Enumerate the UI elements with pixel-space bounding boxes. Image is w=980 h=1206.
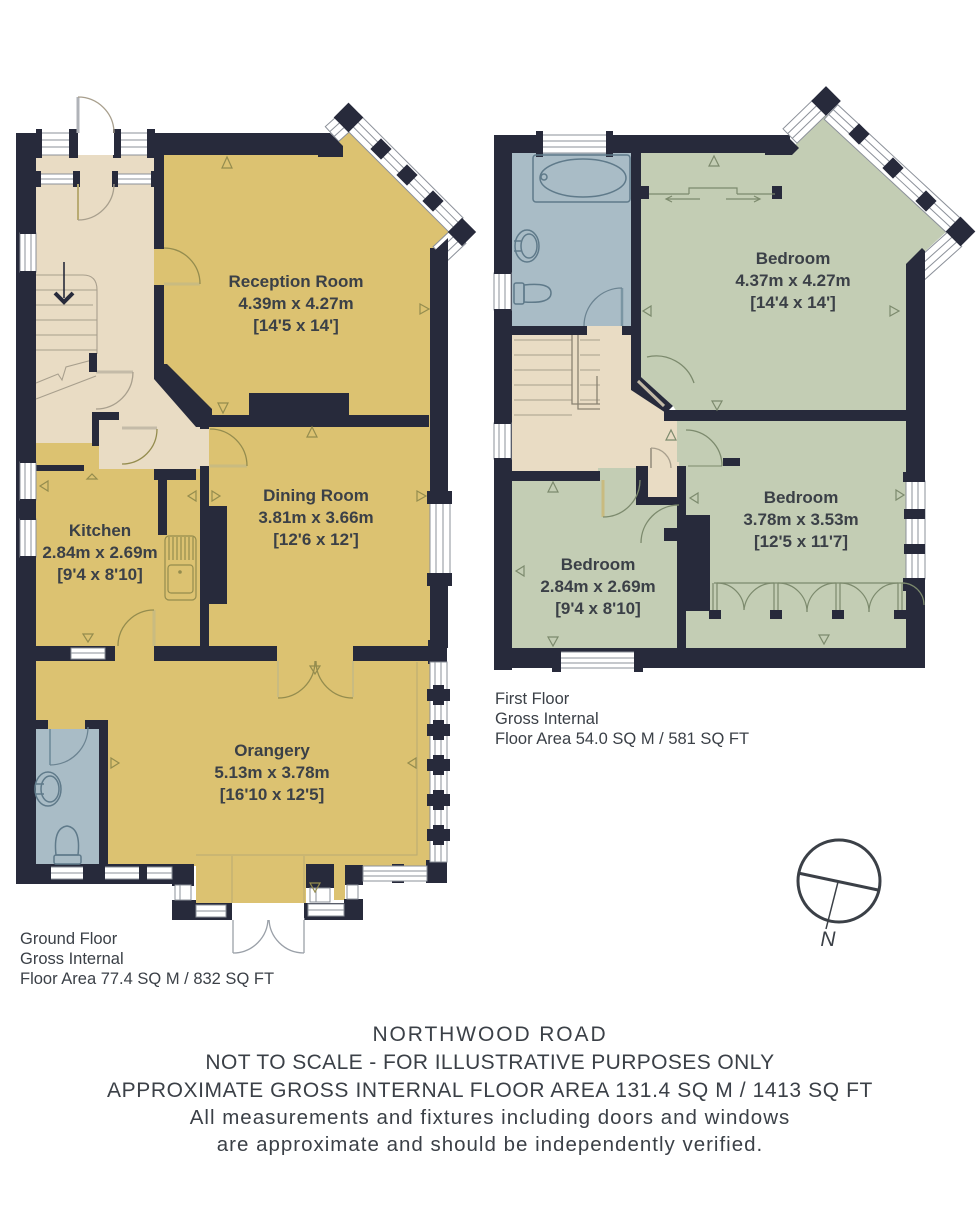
svg-text:are approximate and should be: are approximate and should be independen… (217, 1133, 763, 1156)
svg-text:Kitchen: Kitchen (69, 521, 131, 540)
svg-text:[12'5 x 11'7]: [12'5 x 11'7] (754, 532, 848, 551)
svg-text:Bedroom: Bedroom (756, 249, 831, 268)
svg-text:2.84m x 2.69m: 2.84m x 2.69m (540, 577, 655, 596)
svg-text:[12'6 x 12']: [12'6 x 12'] (273, 530, 359, 549)
svg-text:[14'4 x 14']: [14'4 x 14'] (750, 293, 836, 312)
svg-text:Bedroom: Bedroom (561, 555, 636, 574)
svg-text:First Floor: First Floor (495, 690, 570, 708)
svg-text:All measurements and fixtures: All measurements and fixtures including … (190, 1106, 791, 1129)
svg-text:3.81m x 3.66m: 3.81m x 3.66m (258, 508, 373, 527)
svg-text:Reception Room: Reception Room (228, 272, 363, 291)
svg-text:NORTHWOOD ROAD: NORTHWOOD ROAD (372, 1023, 607, 1046)
svg-text:[9'4 x 8'10]: [9'4 x 8'10] (57, 565, 143, 584)
svg-text:Gross Internal: Gross Internal (495, 710, 599, 728)
svg-text:[16'10 x 12'5]: [16'10 x 12'5] (220, 785, 325, 804)
svg-text:Floor Area 54.0 SQ M / 581 SQ: Floor Area 54.0 SQ M / 581 SQ FT (495, 730, 749, 748)
svg-text:[14'5 x 14']: [14'5 x 14'] (253, 316, 339, 335)
svg-text:APPROXIMATE GROSS INTERNAL FLO: APPROXIMATE GROSS INTERNAL FLOOR AREA 13… (107, 1079, 873, 1102)
svg-text:[9'4 x 8'10]: [9'4 x 8'10] (555, 599, 641, 618)
svg-text:Bedroom: Bedroom (764, 488, 839, 507)
svg-text:Orangery: Orangery (234, 741, 310, 760)
svg-text:N: N (820, 928, 836, 951)
svg-text:4.39m x 4.27m: 4.39m x 4.27m (238, 294, 353, 313)
svg-text:NOT TO SCALE - FOR ILLUSTRATIV: NOT TO SCALE - FOR ILLUSTRATIVE PURPOSES… (205, 1051, 774, 1074)
svg-text:Dining Room: Dining Room (263, 486, 369, 505)
svg-text:3.78m x 3.53m: 3.78m x 3.53m (743, 510, 858, 529)
svg-text:Gross Internal: Gross Internal (20, 950, 124, 968)
svg-text:Ground Floor: Ground Floor (20, 930, 118, 948)
svg-text:Floor Area 77.4 SQ M / 832 SQ: Floor Area 77.4 SQ M / 832 SQ FT (20, 970, 274, 988)
svg-text:4.37m x 4.27m: 4.37m x 4.27m (735, 271, 850, 290)
svg-text:5.13m x 3.78m: 5.13m x 3.78m (214, 763, 329, 782)
svg-text:2.84m x 2.69m: 2.84m x 2.69m (42, 543, 157, 562)
